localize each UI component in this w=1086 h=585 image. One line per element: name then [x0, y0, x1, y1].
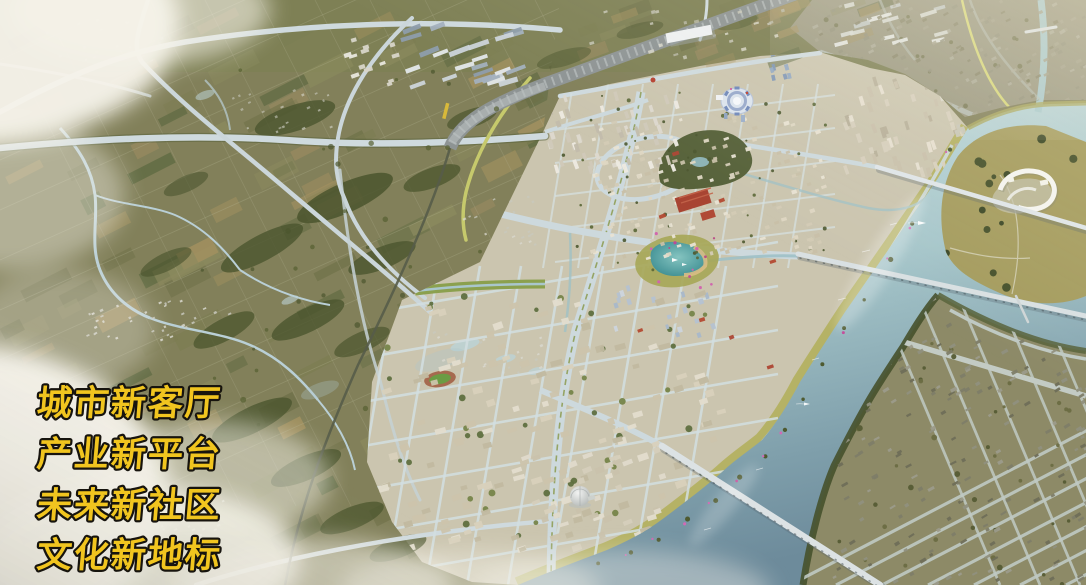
slogan-line-1: 城市新客厅	[35, 383, 223, 423]
slogan-line-4: 文化新地标	[35, 536, 223, 575]
slogan-line-3: 未来新社区	[35, 486, 223, 525]
aerial-city-scene: 城市新客厅 产业新平台 未来新社区 文化新地标	[0, 0, 1086, 585]
city-masterplan-rendering: 城市新客厅 产业新平台 未来新社区 文化新地标	[0, 0, 1086, 585]
slogan-line-2: 产业新平台	[35, 435, 223, 474]
